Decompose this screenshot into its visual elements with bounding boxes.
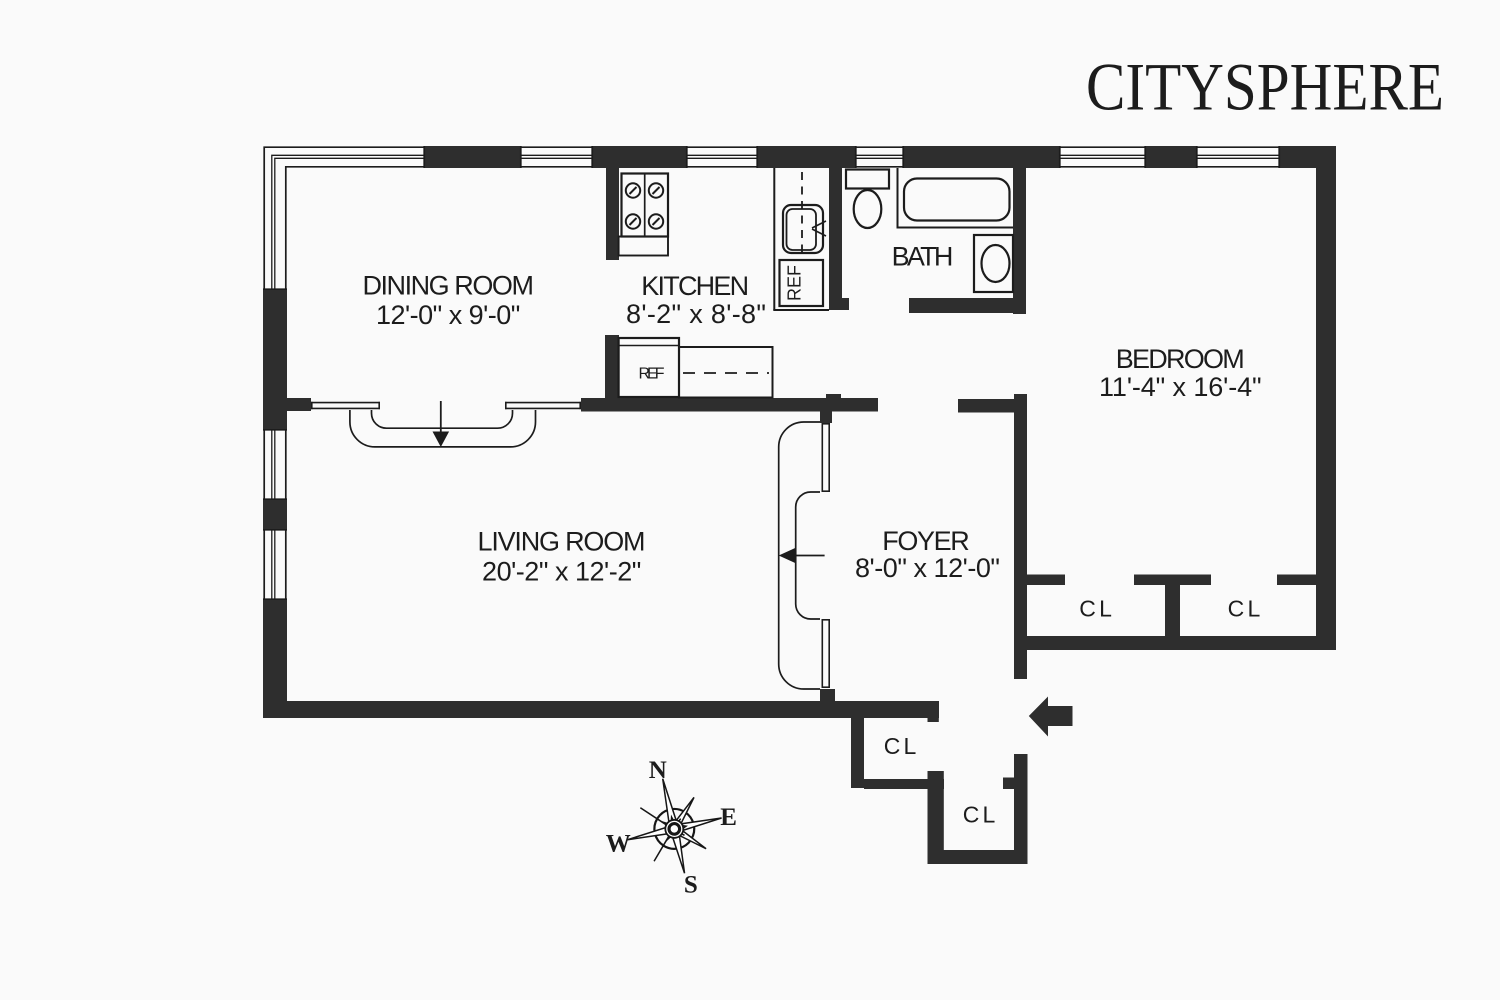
svg-text:CL: CL: [1228, 595, 1261, 621]
svg-text:11'-4" x 16'-4": 11'-4" x 16'-4": [1099, 372, 1262, 402]
svg-text:BEDROOM: BEDROOM: [1116, 344, 1245, 374]
svg-text:LIVING ROOM: LIVING ROOM: [478, 527, 646, 557]
svg-text:REF: REF: [639, 366, 665, 383]
svg-text:20'-2" x 12'-2": 20'-2" x 12'-2": [482, 557, 641, 587]
svg-text:S: S: [684, 872, 698, 899]
svg-text:DINING ROOM: DINING ROOM: [362, 270, 534, 300]
svg-text:BATH: BATH: [892, 241, 954, 271]
svg-text:W: W: [606, 830, 631, 857]
svg-text:CL: CL: [963, 802, 996, 828]
svg-text:12'-0" x 9'-0": 12'-0" x 9'-0": [376, 300, 520, 330]
svg-text:CITYSPHERE: CITYSPHERE: [1086, 49, 1444, 125]
svg-text:KITCHEN: KITCHEN: [641, 271, 749, 301]
svg-text:CL: CL: [1079, 595, 1112, 621]
svg-text:FOYER: FOYER: [882, 526, 970, 556]
svg-text:CL: CL: [884, 733, 917, 759]
svg-text:E: E: [720, 804, 737, 831]
svg-text:N: N: [649, 757, 667, 784]
svg-text:8'-0" x 12'-0": 8'-0" x 12'-0": [855, 553, 1000, 583]
svg-text:REF: REF: [785, 265, 805, 301]
svg-text:8'-2" x 8'-8": 8'-2" x 8'-8": [626, 299, 766, 329]
